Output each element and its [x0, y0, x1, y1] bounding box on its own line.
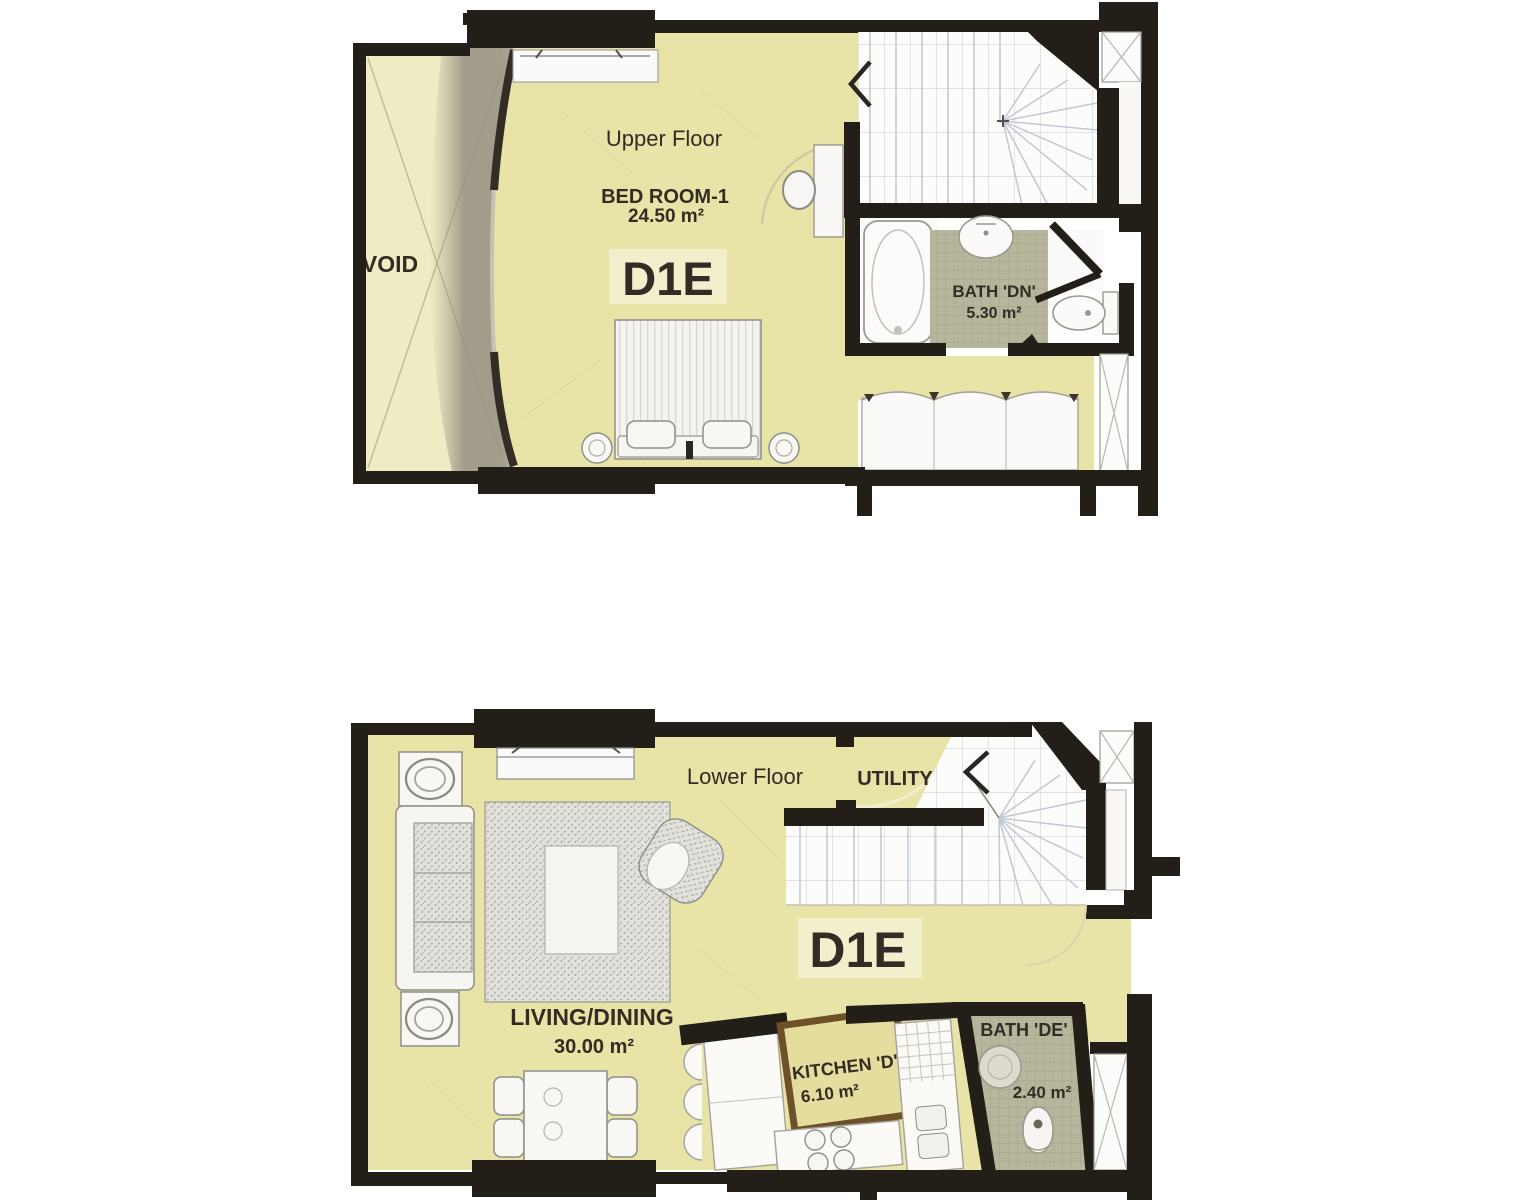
svg-text:D1E: D1E: [622, 252, 713, 305]
svg-text:2.40 m²: 2.40 m²: [1013, 1083, 1072, 1102]
svg-text:VOID: VOID: [362, 251, 418, 277]
svg-text:30.00 m²: 30.00 m²: [554, 1036, 634, 1058]
svg-text:D1E: D1E: [809, 922, 906, 978]
svg-text:BED ROOM-1: BED ROOM-1: [601, 186, 729, 208]
svg-text:BATH 'DN': BATH 'DN': [952, 282, 1035, 301]
svg-text:Lower Floor: Lower Floor: [687, 764, 803, 789]
svg-text:Upper Floor: Upper Floor: [606, 126, 722, 151]
svg-text:LIVING/DINING: LIVING/DINING: [510, 1004, 674, 1030]
svg-text:5.30 m²: 5.30 m²: [966, 305, 1021, 322]
svg-text:UTILITY: UTILITY: [857, 768, 933, 790]
svg-text:24.50 m²: 24.50 m²: [628, 206, 704, 227]
svg-text:BATH 'DE': BATH 'DE': [980, 1020, 1067, 1040]
